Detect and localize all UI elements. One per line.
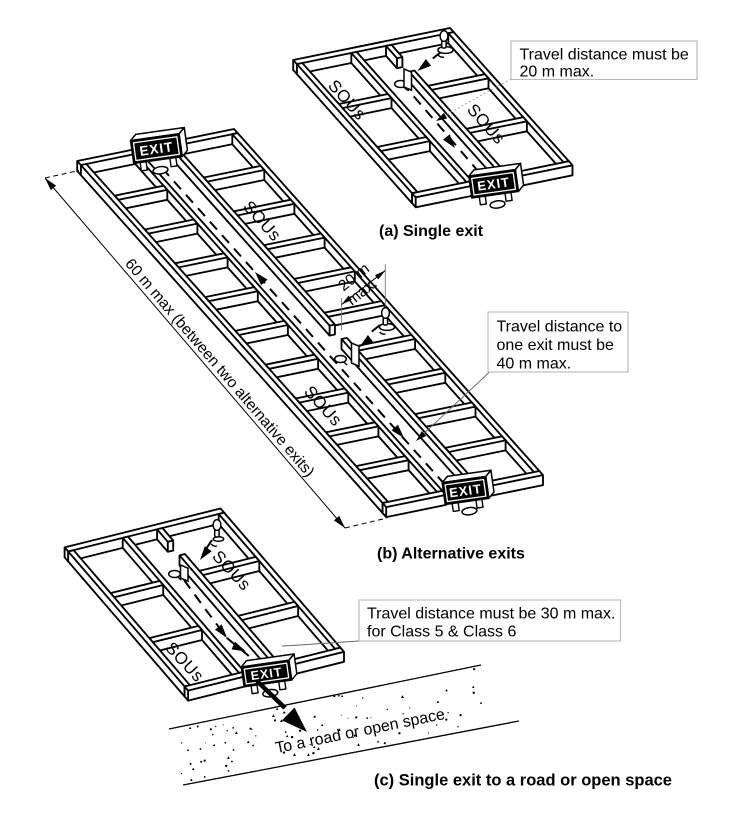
- svg-text:one exit must be: one exit must be: [497, 337, 615, 354]
- svg-text:(b) Alternative exits: (b) Alternative exits: [377, 546, 525, 563]
- svg-text:20 m max.: 20 m max.: [520, 64, 595, 81]
- svg-text:(a) Single exit: (a) Single exit: [379, 223, 484, 240]
- svg-text:Travel distance must be 30 m m: Travel distance must be 30 m max.: [367, 606, 615, 623]
- svg-text:40 m max.: 40 m max.: [497, 356, 572, 373]
- svg-text:(c) Single exit to a road or o: (c) Single exit to a road or open space: [374, 772, 672, 790]
- svg-text:Travel distance must be: Travel distance must be: [520, 47, 689, 64]
- svg-text:for Class 5 & Class 6: for Class 5 & Class 6: [367, 624, 516, 641]
- svg-text:Travel distance to: Travel distance to: [497, 319, 623, 336]
